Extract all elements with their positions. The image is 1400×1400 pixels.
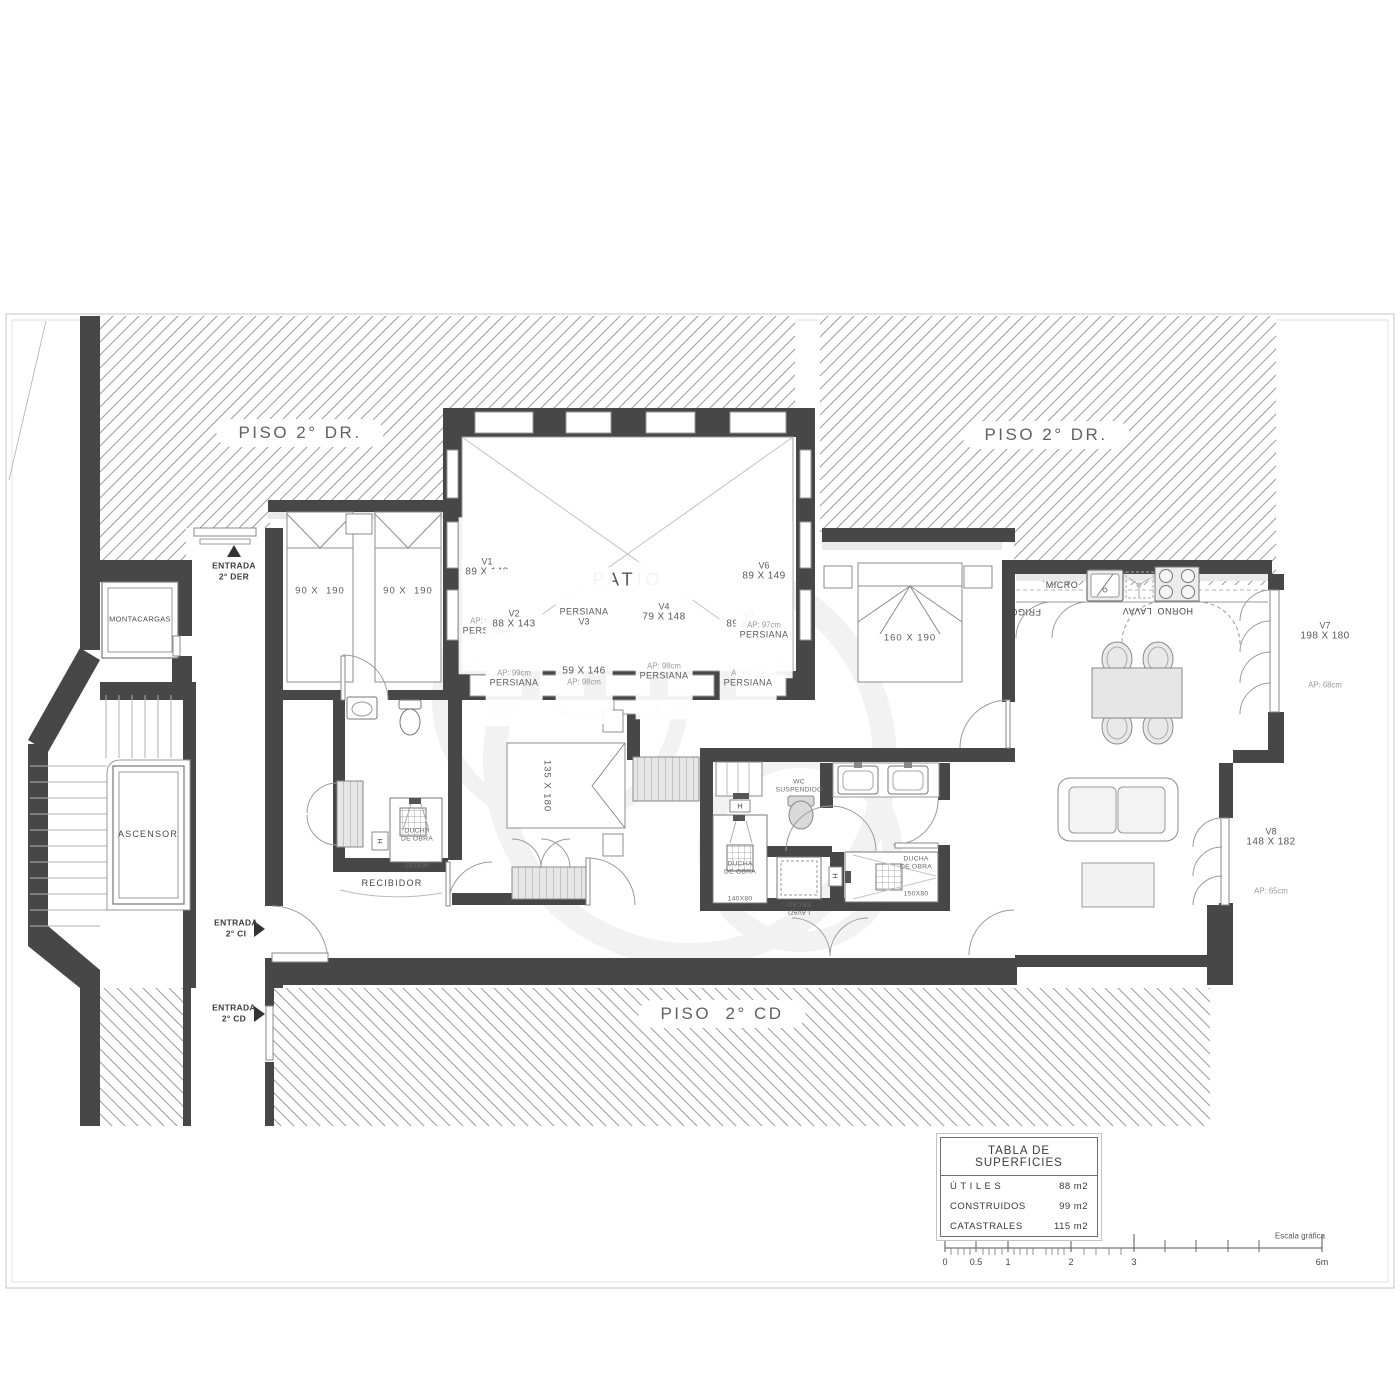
bedroom-twin-beds	[287, 512, 441, 682]
neighbor-label-bottom: PISO 2° CD	[638, 1000, 805, 1028]
entry-door-cd-leaf	[266, 1006, 273, 1060]
frigo-label: FRIGO.	[1007, 607, 1041, 617]
ducha-150x80-label: DUCHADE OBRA 150X80	[900, 837, 932, 916]
dining-table	[1092, 668, 1182, 718]
window-v8-casements	[1193, 818, 1222, 905]
scale-tick-0: 0	[942, 1257, 947, 1267]
bed-dim-single-right: 90 X 190	[383, 586, 433, 597]
entrada-der-label: ENTRADA2° DER	[212, 538, 256, 607]
nightstand	[603, 834, 623, 856]
window-tag-v7: V7198 X 180 AP: 68cm	[1296, 582, 1353, 729]
recibidor-leader	[340, 890, 442, 897]
nightstand	[824, 566, 852, 588]
scale-tick-2: 2	[1068, 1257, 1073, 1267]
micro-label: MICRO	[1046, 580, 1079, 590]
bedroom-middle	[507, 710, 625, 899]
horno-label: HORNO	[1157, 606, 1193, 616]
surface-table-row: CATASTRALES115 m2	[941, 1216, 1097, 1236]
kitchen	[1016, 567, 1268, 744]
scale-tick-1: 1	[1005, 1257, 1010, 1267]
bed-dim-middle: 135 X 180	[542, 760, 553, 812]
sill-strip	[822, 542, 1002, 550]
window-v7-casements	[1240, 590, 1271, 714]
hob	[1155, 567, 1199, 601]
nightstand	[346, 514, 372, 534]
hall-wardrobe	[633, 757, 699, 801]
wc-suspendido-label: WCSUSPENDIDO	[776, 761, 823, 814]
surface-table-title: TABLA DE SUPERFICIES	[941, 1138, 1097, 1176]
lavav-label: LAVAV	[1122, 606, 1152, 616]
window-tag-v2: V288 X 143 AP: 99cmPERSIANA	[486, 569, 543, 726]
entry-door-ci-leaf	[272, 953, 328, 962]
surface-table-row: Ú T I L E S88 m2	[941, 1176, 1097, 1196]
boundary-diagonal-line	[9, 321, 46, 480]
scale-tick-05: 0.5	[970, 1257, 983, 1267]
window-tag-v4: V479 X 148 AP: 98cmPERSIANA	[636, 562, 693, 719]
bed-dim-single-left: 90 X 190	[295, 586, 345, 597]
nightstand	[964, 566, 992, 588]
coffee-table	[1082, 863, 1154, 907]
toilet	[399, 700, 421, 709]
hatch-neighbor-bottom-left	[100, 988, 184, 1126]
radiator	[512, 867, 586, 899]
entrada-cd-label: ENTRADA2° CD	[212, 980, 256, 1049]
scale-tick-3: 3	[1131, 1257, 1136, 1267]
bed-135x180	[507, 743, 625, 828]
surface-table: TABLA DE SUPERFICIES Ú T I L E S88 m2 CO…	[936, 1133, 1102, 1241]
towel-rail-h-1: H	[376, 838, 385, 843]
bed-160x190	[858, 563, 962, 682]
living-room	[1058, 778, 1178, 907]
neighbor-label-top-left: PISO 2° DR.	[216, 419, 383, 447]
towel-rail-h-2: H	[737, 802, 742, 811]
shower-mixer	[733, 793, 749, 799]
scale-tick-6m: 6m	[1316, 1257, 1329, 1267]
closet	[337, 781, 363, 847]
kitchen-sink	[1087, 570, 1123, 601]
neighbor-label-top-right: PISO 2° DR.	[962, 421, 1129, 449]
bed-dim-master: 160 X 190	[884, 633, 936, 644]
montacargas-label: MONTACARGAS	[109, 615, 171, 624]
ascensor-label: ASCENSOR	[118, 829, 178, 839]
dining-set	[1092, 642, 1182, 744]
surface-table-row: CONSTRUIDOS99 m2	[941, 1196, 1097, 1216]
entrada-ci-label: ENTRADA2° CI	[214, 895, 258, 964]
window-tag-v8: V8148 X 182 AP: 65cm	[1242, 788, 1299, 935]
scale-caption: Escala gráfica	[1275, 1232, 1325, 1241]
window-tag-v6: V689 X 149 AP: 97cmPERSIANA	[736, 521, 793, 678]
window-tag-v3: PERSIANAV3 59 X 146AP: 98cm	[556, 567, 613, 724]
lavad-secad-label: LAVADSECAD	[787, 881, 811, 934]
floor-plan-drawing	[0, 0, 1400, 1400]
ducha-150x90-label: DUCHADE OBRA 150X90	[401, 809, 433, 888]
entry-door-der-leaf	[194, 528, 256, 536]
floor-plan-canvas: PISO 2° DR. PISO 2° DR. PISO 2° CD ENTRA…	[0, 0, 1400, 1400]
duct	[716, 762, 762, 796]
ducha-140x80-label: DUCHADE OBRA 140X80	[724, 842, 756, 921]
towel-rail-h-3: H	[831, 873, 840, 878]
